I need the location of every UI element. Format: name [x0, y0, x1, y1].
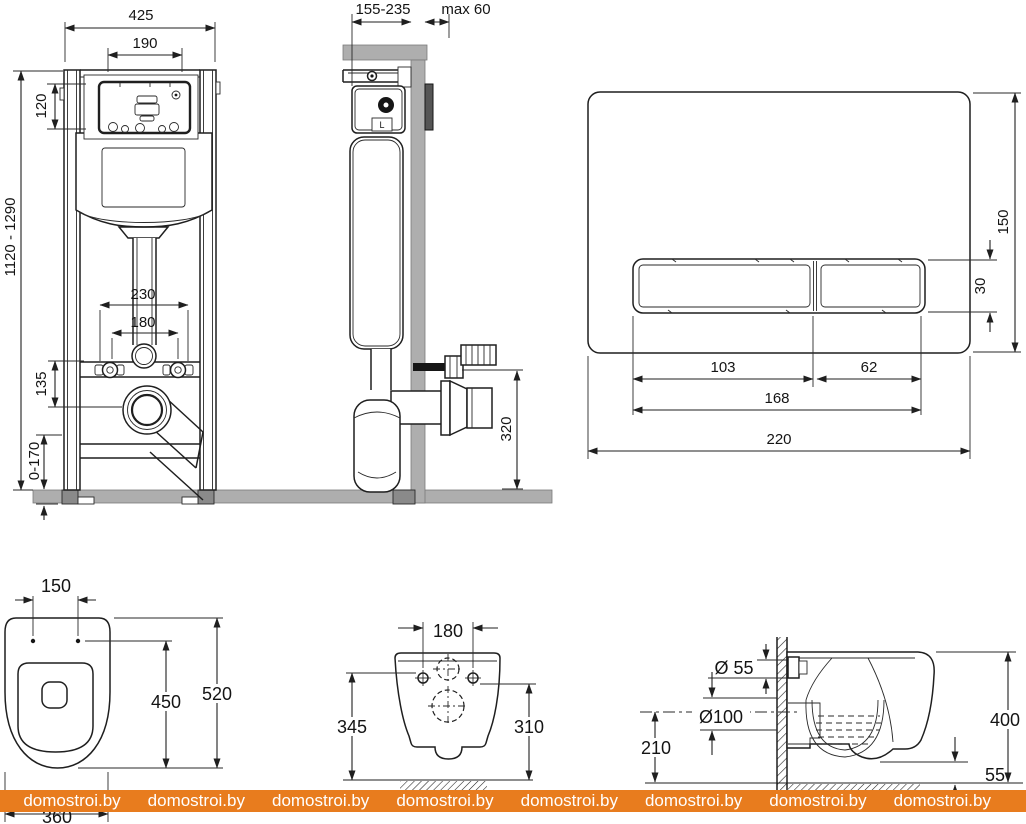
watermark-text: domostroi.by — [148, 790, 272, 812]
rail-tab — [216, 82, 220, 94]
bowl-outline-side — [787, 652, 934, 759]
drawing-svg: 425 190 120 1120 - 1290 230 180 135 0-17… — [0, 0, 1026, 824]
dim-inlet-diameter: Ø 55 — [714, 658, 753, 678]
dim-left-height: 345 — [337, 717, 367, 737]
bolt-tab — [163, 365, 170, 375]
flush-actuator-dot — [384, 103, 389, 108]
watermark-text: domostroi.by — [23, 790, 147, 812]
dim-plate-height: 150 — [995, 209, 1012, 234]
watermark-text: domostroi.by — [272, 790, 396, 812]
valve-mark-label: L — [379, 120, 384, 130]
seat-hole — [76, 639, 80, 643]
dim-opening-height: 120 — [33, 93, 50, 118]
drain-cone — [450, 381, 467, 435]
supply-pipe — [413, 363, 447, 371]
dim-small-button-width: 62 — [861, 359, 878, 376]
watermark-text: domostroi.by — [645, 790, 769, 812]
drain-socket — [467, 388, 492, 428]
dim-button-height: 30 — [972, 278, 989, 295]
view-bowl-top: 150 450 520 360 — [5, 576, 237, 824]
watermark-band: domostroi.by domostroi.by domostroi.by d… — [0, 790, 1026, 812]
flush-plate-body — [588, 92, 970, 353]
view-flush-plate: 150 30 103 62 168 220 — [588, 92, 1021, 459]
wall-anchor — [425, 84, 433, 130]
dim-outlet-height: 320 — [498, 416, 515, 441]
foot-plate — [182, 497, 198, 504]
bowl-outline-top — [5, 618, 110, 768]
dim-leg-adjust: 0-170 — [26, 442, 43, 480]
view-bowl-side: Ø 55 Ø100 210 400 55 — [635, 637, 1026, 801]
seat-hole — [31, 639, 35, 643]
dim-anchor-span: 230 — [130, 286, 155, 303]
drain-flange — [441, 381, 450, 435]
drain-elbow-line — [166, 398, 203, 432]
watermark-text: domostroi.by — [769, 790, 893, 812]
ceiling-slab — [343, 45, 427, 60]
bracket-hook — [398, 67, 411, 87]
button-recess — [633, 259, 925, 313]
view-bowl-rear: 180 345 310 — [332, 621, 549, 790]
foot-plate — [78, 497, 94, 504]
frame-foot-side — [393, 490, 415, 504]
fixing-bolt-left — [103, 363, 118, 378]
inlet-connector — [788, 657, 799, 678]
dim-buttons-width: 168 — [764, 390, 789, 407]
ground-hatch — [400, 781, 487, 790]
watermark-text: domostroi.by — [521, 790, 645, 812]
opening-bolt-dot — [175, 94, 178, 97]
dim-seat-hole-span: 150 — [41, 576, 71, 596]
dim-opening-width: 190 — [132, 35, 157, 52]
dim-outlet-center-height: 210 — [641, 738, 671, 758]
watermark-text: domostroi.by — [0, 790, 23, 812]
dim-bowl-length: 450 — [151, 692, 181, 712]
technical-drawing-sheet: 425 190 120 1120 - 1290 230 180 135 0-17… — [0, 0, 1026, 824]
view-frame-side: L 155-235 max 60 — [343, 1, 523, 492]
floor-slab — [33, 490, 552, 503]
rail-tab — [60, 88, 64, 100]
tank-side — [350, 137, 403, 349]
dim-fixing-span: 180 — [433, 621, 463, 641]
flush-bend-funnel — [119, 227, 168, 238]
view-frame-front: 425 190 120 1120 - 1290 230 180 135 0-17… — [2, 7, 220, 520]
dim-wall-thickness: max 60 — [441, 1, 490, 18]
dim-frame-total-width: 425 — [128, 7, 153, 24]
pipe-fill — [371, 349, 391, 389]
bracket-bolt-dot — [370, 74, 373, 77]
dim-outlet-diameter: Ø100 — [699, 707, 743, 727]
rough-wall — [411, 60, 425, 503]
inlet-connector-step — [799, 661, 807, 674]
watermark-text: domostroi.by — [894, 790, 1018, 812]
dim-rim-clearance: 55 — [985, 765, 1005, 785]
dim-right-height: 310 — [514, 717, 544, 737]
watermark-text: domostroi.by — [396, 790, 520, 812]
dim-total-length: 520 — [202, 684, 232, 704]
dim-depth-range: 155-235 — [355, 1, 410, 18]
access-opening-frame — [99, 82, 190, 133]
dim-frame-height-range: 1120 - 1290 — [2, 198, 19, 277]
dim-bolt-span: 180 — [130, 314, 155, 331]
fixing-bolt-right — [171, 363, 186, 378]
dim-bowl-height: 400 — [990, 710, 1020, 730]
frame-foot-left — [62, 490, 78, 504]
cistern-tank — [76, 133, 212, 227]
dim-plate-width: 220 — [766, 431, 791, 448]
dim-big-button-width: 103 — [710, 359, 735, 376]
dim-outlet-offset: 135 — [33, 371, 50, 396]
outlet-socket — [123, 386, 171, 434]
